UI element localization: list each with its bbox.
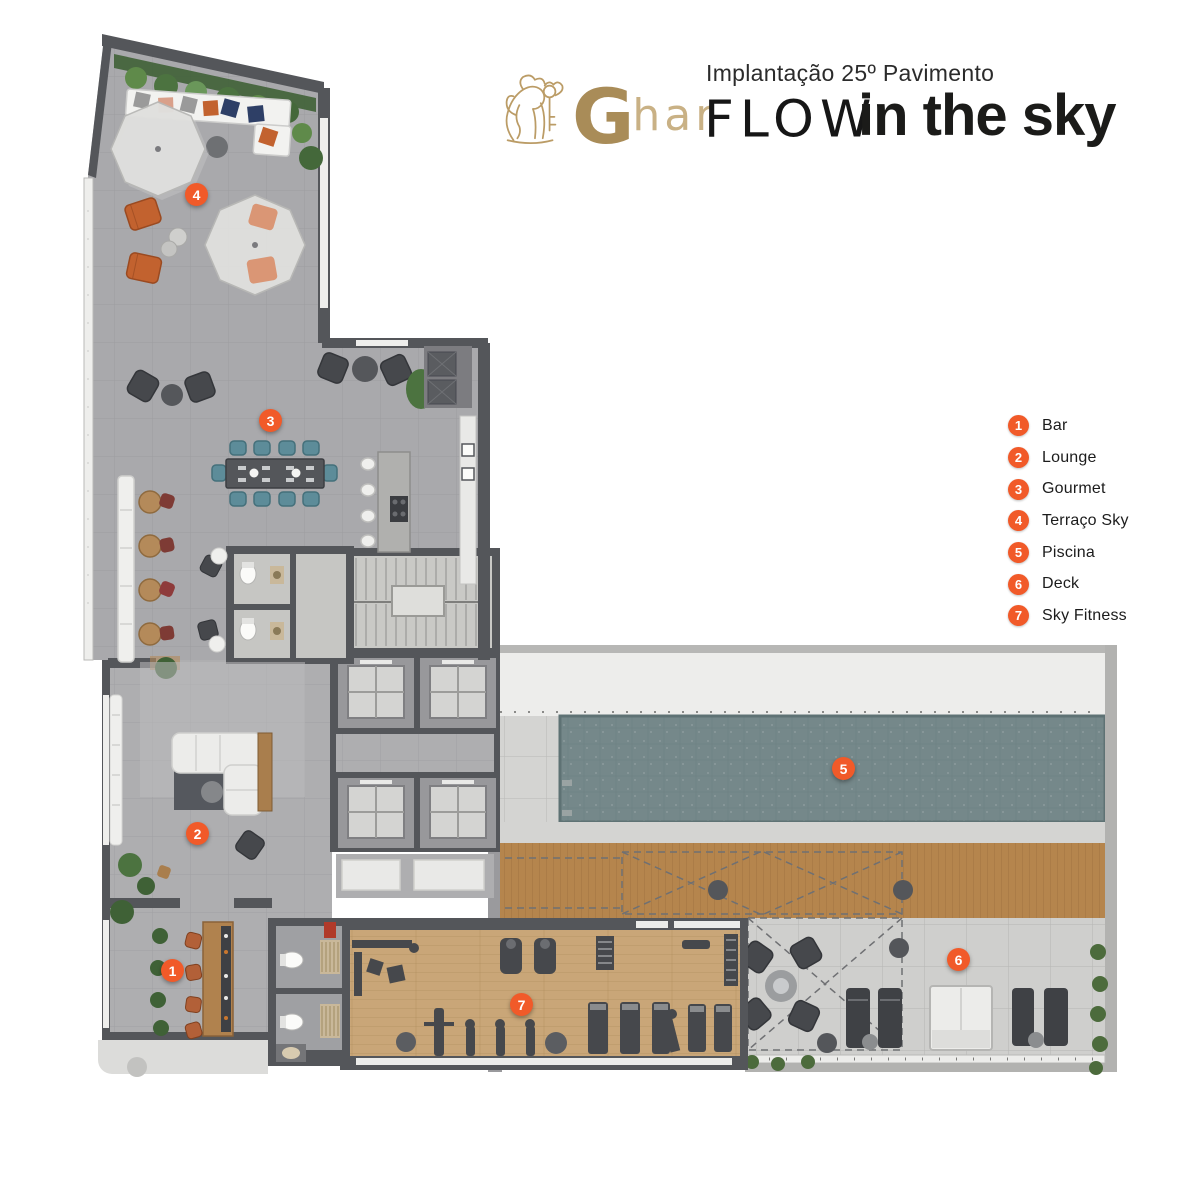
marker-bar: 1 [161, 959, 184, 982]
legend-label: Terraço Sky [1042, 512, 1129, 530]
logo-tagline: in the sky [858, 82, 1116, 149]
marker-sky-fitness: 7 [510, 993, 533, 1016]
legend-label: Piscina [1042, 544, 1095, 562]
legend-item-piscina: 5 Piscina [1008, 537, 1129, 569]
marker-gourmet: 3 [259, 409, 282, 432]
marker-piscina: 5 [832, 757, 855, 780]
bar-terrace-apron [98, 1040, 268, 1074]
legend-item-sky-fitness: 7 Sky Fitness [1008, 600, 1129, 632]
pool-deck-boardwalk [500, 843, 1105, 918]
pergola-post [889, 938, 909, 958]
legend-label: Sky Fitness [1042, 607, 1127, 625]
legend-number-badge: 3 [1008, 479, 1029, 500]
brand-logo: G har [494, 70, 717, 150]
legend-item-terraco-sky: 4 Terraço Sky [1008, 505, 1129, 537]
console [258, 733, 272, 811]
legend-number-badge: 4 [1008, 510, 1029, 531]
sky-fitness-room [340, 918, 748, 1070]
pergola-post [893, 880, 913, 900]
terrace-side-table [206, 136, 228, 158]
circulation-core [330, 548, 500, 898]
legend-item-lounge: 2 Lounge [1008, 442, 1129, 474]
floorplan-poster: G har Implantação 25º Pavimento FLOW in … [0, 0, 1200, 1200]
legend-item-gourmet: 3 Gourmet [1008, 473, 1129, 505]
legend-number-badge: 2 [1008, 447, 1029, 468]
fire-cabinet [324, 922, 336, 938]
legend-item-bar: 1 Bar [1008, 410, 1129, 442]
legend-number-badge: 7 [1008, 605, 1029, 626]
legend-label: Gourmet [1042, 480, 1106, 498]
flow-logo-text: FLOW [704, 91, 877, 150]
ghar-lion-logo-icon [494, 70, 572, 150]
marker-lounge: 2 [186, 822, 209, 845]
legend-label: Lounge [1042, 449, 1097, 467]
parasol [205, 195, 305, 295]
elevator [338, 658, 414, 728]
elevator [420, 778, 496, 848]
legend-label: Deck [1042, 575, 1079, 593]
marker-terraco-sky: 4 [185, 183, 208, 206]
legend-label: Bar [1042, 417, 1068, 435]
legend: 1 Bar 2 Lounge 3 Gourmet 4 Terraço Sky 5… [1008, 410, 1129, 632]
pergola-post [708, 880, 728, 900]
legend-number-badge: 1 [1008, 415, 1029, 436]
plant [118, 853, 142, 877]
elevator [338, 778, 414, 848]
elevator [420, 658, 496, 728]
brand-g: G [572, 85, 630, 150]
marker-deck: 6 [947, 948, 970, 971]
legend-number-badge: 6 [1008, 574, 1029, 595]
legend-number-badge: 5 [1008, 542, 1029, 563]
side-table [201, 781, 223, 803]
pergola-post [817, 1033, 837, 1053]
legend-item-deck: 6 Deck [1008, 568, 1129, 600]
bar-wc [268, 918, 350, 1066]
